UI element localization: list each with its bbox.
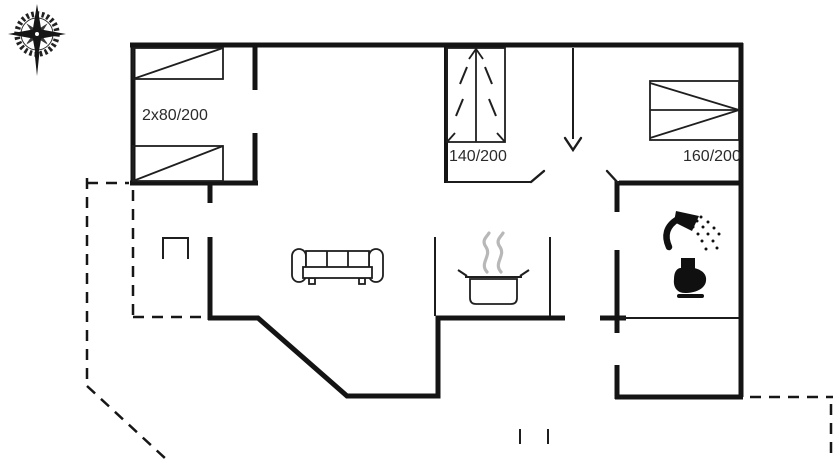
cooking-pot-icon: [458, 233, 529, 304]
door-leaf-stroke-left: [531, 171, 544, 182]
exterior-walls: [130, 43, 743, 399]
washbasin-icon: [163, 238, 188, 259]
door-leaf-stroke-right: [607, 171, 618, 183]
single-bed-top-icon: [133, 48, 223, 79]
terrace-diagonal-edge: [87, 386, 167, 460]
single-bed-bottom-icon: [133, 146, 223, 181]
step-marks-icon: [520, 429, 548, 444]
bedroom-mid-label: 140/200: [449, 148, 507, 165]
floorplan-canvas: 2x80/200 140/200 160/200: [0, 0, 834, 460]
shower-icon: [666, 211, 720, 251]
double-bed-140-icon: [447, 48, 505, 142]
floorplan-svg: 2x80/200 140/200 160/200: [0, 0, 834, 460]
bedroom-nw-label: 2x80/200: [142, 107, 208, 124]
steam-icon: [484, 233, 503, 272]
compass-rose-icon: [8, 4, 66, 76]
double-bed-160-icon: [650, 81, 739, 140]
living-room-south-wall: [208, 318, 565, 396]
door-chevron: [565, 138, 581, 150]
toilet-icon: [674, 258, 706, 298]
bedroom-ne-label: 160/200: [683, 148, 741, 165]
sofa-icon: [292, 249, 383, 284]
